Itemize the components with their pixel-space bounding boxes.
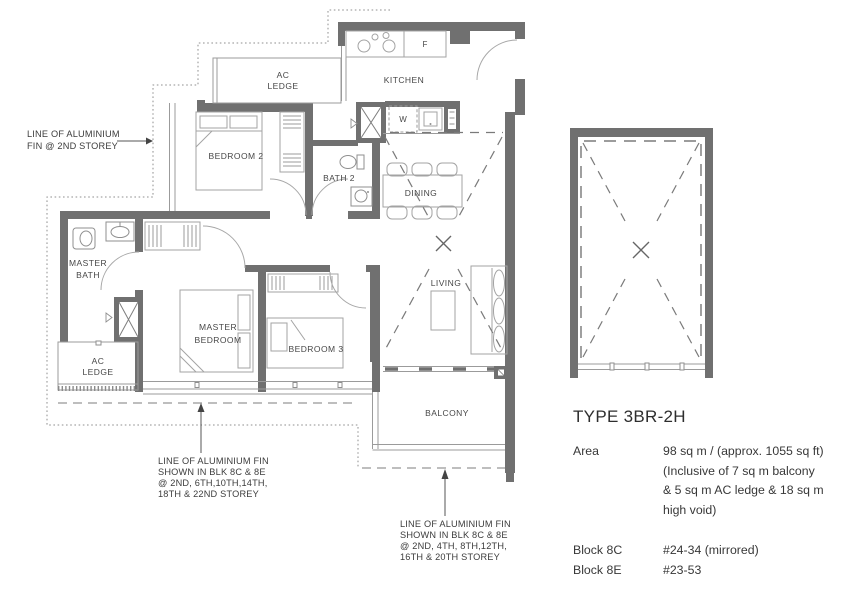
burner-icon: [358, 40, 370, 52]
balcony-parapet: [373, 392, 506, 450]
fridge-label: F: [423, 40, 428, 49]
master-bath-fixtures: [73, 222, 134, 249]
living-void-marks: [385, 133, 503, 351]
room-label-bath2: BATH 2: [323, 173, 355, 183]
room-label-dining: DINING: [405, 188, 437, 198]
room-label-living: LIVING: [431, 278, 462, 288]
svg-text:@ 2ND, 6TH,10TH,14TH,: @ 2ND, 6TH,10TH,14TH,: [158, 478, 268, 488]
floorplan-page: AC LEDGE KITCHEN F W BEDROOM 2 BATH 2 DI…: [0, 0, 842, 601]
svg-text:LINE OF ALUMINIUM: LINE OF ALUMINIUM: [27, 129, 120, 139]
svg-text:LEDGE: LEDGE: [82, 367, 113, 377]
svg-text:FIN @ 2ND STOREY: FIN @ 2ND STOREY: [27, 141, 118, 151]
bedroom2-wardrobe: [280, 112, 304, 172]
washer-label: W: [399, 115, 407, 124]
room-label-ac-ledge-top: AC: [277, 70, 290, 80]
burner-icon: [372, 34, 378, 40]
balcony-sliding-door: [383, 367, 503, 372]
burner-icon: [383, 33, 389, 39]
svg-text:BATH: BATH: [76, 270, 100, 280]
shaft-master-icon: [106, 297, 143, 342]
fin-annotation-left: LINE OF ALUMINIUM FIN @ 2ND STOREY: [27, 129, 120, 151]
fin-dotted-outline: [47, 10, 390, 468]
entry-door-arc: [477, 40, 517, 80]
block-row: Block 8E #23-53: [573, 561, 835, 581]
area-row: Area 98 sq m / (approx. 1055 sq ft) (Inc…: [573, 442, 835, 520]
burner-icon: [383, 40, 395, 52]
svg-text:LINE OF ALUMINIUM FIN: LINE OF ALUMINIUM FIN: [400, 519, 511, 529]
sofa: [471, 266, 507, 354]
master-bedroom-wardrobe: [145, 222, 200, 250]
toilet-icon: [340, 156, 356, 169]
area-value: 98 sq m / (approx. 1055 sq ft) (Inclusiv…: [663, 442, 835, 520]
room-label-balcony: BALCONY: [425, 408, 469, 418]
room-label-master-bath: MASTER: [69, 258, 107, 268]
room-label-bedroom2: BEDROOM 2: [208, 151, 263, 161]
room-label-bedroom3: BEDROOM 3: [288, 344, 343, 354]
svg-text:LEDGE: LEDGE: [267, 81, 298, 91]
fin-annotation-bottom-middle: LINE OF ALUMINIUM FIN SHOWN IN BLK 8C & …: [400, 519, 511, 562]
svg-text:16TH & 20TH STOREY: 16TH & 20TH STOREY: [400, 552, 500, 562]
master-bedroom-door-arc: [203, 226, 245, 268]
bedroom3-wardrobe: [268, 274, 338, 292]
coffee-table: [431, 291, 455, 330]
svg-text:18TH & 22ND STOREY: 18TH & 22ND STOREY: [158, 489, 259, 499]
svg-text:BEDROOM: BEDROOM: [194, 335, 241, 345]
windows: [143, 46, 372, 394]
unit-type-title: TYPE 3BR-2H: [573, 407, 835, 427]
room-label-master-bedroom: MASTER: [199, 322, 237, 332]
block-row: Block 8C #24-34 (mirrored): [573, 541, 835, 561]
block-listing: Block 8C #24-34 (mirrored) Block 8E #23-…: [573, 541, 835, 580]
unit-info-panel: TYPE 3BR-2H Area 98 sq m / (approx. 1055…: [573, 407, 835, 580]
room-label-ac-ledge-bottom: AC: [92, 356, 105, 366]
shaft-kitchen-icon: [351, 102, 386, 143]
bath2-door-arc: [312, 179, 348, 215]
balcony-corner-box: [494, 366, 508, 379]
svg-text:LINE OF ALUMINIUM FIN: LINE OF ALUMINIUM FIN: [158, 456, 269, 466]
bedroom3-door-arc: [330, 272, 366, 308]
svg-text:SHOWN IN BLK 8C & 8E: SHOWN IN BLK 8C & 8E: [400, 530, 508, 540]
washer-dryer-row: [383, 105, 460, 134]
area-label: Area: [573, 442, 663, 520]
svg-text:SHOWN IN BLK 8C & 8E: SHOWN IN BLK 8C & 8E: [158, 467, 266, 477]
svg-text:@ 2ND, 4TH, 8TH,12TH,: @ 2ND, 4TH, 8TH,12TH,: [400, 541, 507, 551]
toilet-icon: [357, 155, 364, 169]
bedroom2-door-arc: [270, 179, 306, 215]
fin-annotation-bottom-left: LINE OF ALUMINIUM FIN SHOWN IN BLK 8C & …: [158, 456, 269, 499]
high-void-diagram: [570, 128, 713, 378]
kitchen-counter: [346, 31, 446, 57]
room-label-kitchen: KITCHEN: [384, 75, 424, 85]
bedroom3-bed: [267, 318, 343, 368]
